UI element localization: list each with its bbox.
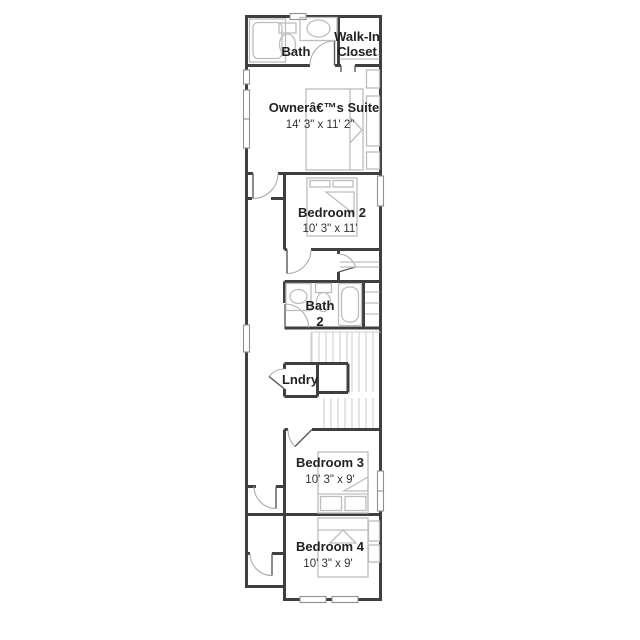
window-icon <box>332 596 358 604</box>
window-icon <box>377 471 385 511</box>
window-icon <box>300 596 326 604</box>
window-icon <box>243 325 251 352</box>
window-icon <box>377 176 385 206</box>
window-frame <box>290 14 306 20</box>
room-label-bedroom2: Bedroom 2 <box>298 205 366 220</box>
window-frame <box>378 176 384 206</box>
room-label-bedroom4: Bedroom 4 <box>296 539 365 554</box>
window-frame <box>332 597 358 603</box>
window-icon <box>290 13 306 20</box>
window-frame <box>300 597 326 603</box>
window-frame <box>244 70 250 84</box>
room-label-laundry: Lndry <box>282 372 319 387</box>
room-label-walk-in-closet-line2: Closet <box>337 44 377 59</box>
window-icon <box>243 70 251 84</box>
room-label-bath: Bath <box>282 44 311 59</box>
window-frame <box>244 325 250 352</box>
room-dims-bedroom2: 10' 3" x 11' <box>303 223 358 235</box>
floor-plan: Bath Walk-In Closet Ownerâ€™s Suite 14' … <box>0 0 640 640</box>
room-dims-bedroom3: 10' 3" x 9' <box>305 474 354 486</box>
room-label-bath2-line2: 2 <box>316 314 323 329</box>
room-dims-owners-suite: 14' 3" x 11' 2" <box>286 119 355 131</box>
floor-plan-page: Bath Walk-In Closet Ownerâ€™s Suite 14' … <box>0 0 640 640</box>
room-label-walk-in-closet-line1: Walk-In <box>334 29 380 44</box>
room-dims-bedroom4: 10' 3" x 9' <box>303 558 352 570</box>
room-label-bedroom3: Bedroom 3 <box>296 455 364 470</box>
room-label-owners-suite: Ownerâ€™s Suite <box>269 100 380 115</box>
window-icon <box>243 90 251 148</box>
room-label-bath2-line1: Bath <box>306 298 335 313</box>
